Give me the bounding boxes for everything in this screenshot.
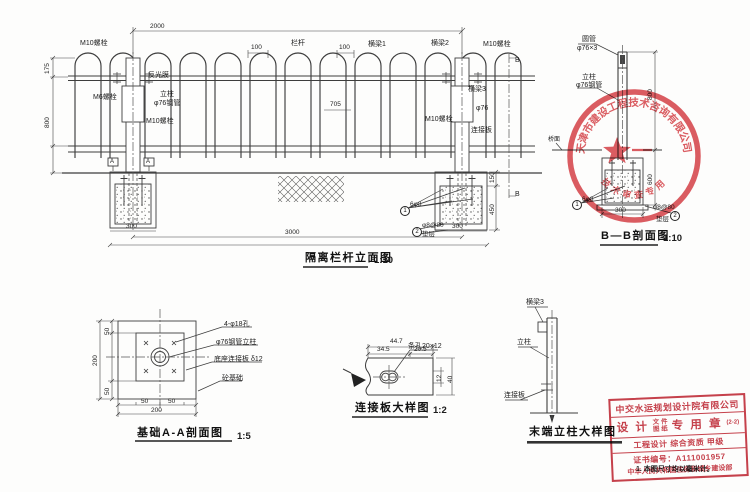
- dim-burial-1: 150: [490, 172, 497, 183]
- callout-stirrup: φ8@80: [422, 223, 444, 230]
- bb-title: B—B剖面图: [601, 231, 670, 243]
- aa-dim-left-total: 200: [93, 355, 100, 366]
- label-phi76: φ76: [476, 105, 488, 112]
- label-bb-cap: 圆管: [582, 36, 596, 43]
- aa-dim-left-2: 50: [105, 388, 112, 395]
- label-beam2: 横梁2: [431, 40, 449, 47]
- label-post-pipe: φ76钢管: [154, 100, 180, 107]
- aa-dim-left-1: 50: [105, 328, 112, 335]
- plate-dim-overall: 44.7: [390, 339, 403, 346]
- label-m10-bolt-mid: M10螺栓: [146, 118, 174, 125]
- aa-dim-bottom-1: 50: [141, 399, 148, 406]
- dim-top-overall: 2000: [150, 24, 164, 31]
- plate-dim-a: 34.5: [377, 347, 390, 354]
- label-conn-plate: 连接板: [471, 127, 492, 134]
- plate-dim-slot-h: 12: [437, 375, 444, 382]
- stamp-drawing: 图 纸: [653, 425, 668, 433]
- label-bb-deck: 桥面: [548, 137, 560, 143]
- dim-foundation-left: 300: [126, 224, 137, 231]
- label-bb-cap-size: φ76×3: [577, 45, 597, 52]
- ep-label-conn: 连接板: [504, 392, 525, 399]
- label-post: 立柱: [160, 91, 174, 98]
- dim-bottom-overall: 3000: [285, 230, 299, 237]
- dim-loop-pitch: 100: [339, 45, 350, 52]
- plate-dim-height: 40: [448, 376, 455, 383]
- dim-mid: 705: [330, 102, 341, 109]
- label-railing: 栏杆: [291, 40, 305, 47]
- drawing-canvas: M10螺栓 反光膜 M6螺栓 立柱 φ76钢管 M10螺栓 栏杆 横梁1 横梁2…: [0, 0, 750, 492]
- section-marker-b1: B: [515, 57, 520, 64]
- plate-title: 连接板大样图: [355, 403, 430, 415]
- label-m10-bolt-top: M10螺栓: [80, 40, 108, 47]
- aa-label-post: φ76钢管立柱: [216, 339, 256, 346]
- aa-label-holes: 4-φ18孔: [224, 321, 250, 328]
- plate-scale: 1:2: [433, 406, 447, 416]
- stamp-special-seal: 专 用 章: [671, 415, 723, 433]
- dim-height-top: 175: [45, 63, 52, 74]
- label-cushion: 垫层: [422, 232, 435, 239]
- callout-1-bubble: 1: [400, 206, 410, 216]
- label-bb-post: 立柱: [582, 74, 596, 81]
- callout-rebar: 6φ8: [410, 202, 421, 209]
- seal-star-icon: [603, 137, 631, 163]
- ep-title: 末端立柱大样图: [529, 427, 617, 439]
- stamp-design: 设 计: [616, 418, 649, 435]
- dim-loop-width: 100: [251, 45, 262, 52]
- ep-label-beam3: 横梁3: [526, 299, 544, 306]
- dim-foundation-right: 300: [452, 224, 463, 231]
- section-marker-a1: A: [110, 159, 114, 165]
- aa-dim-bottom-2: 50: [168, 399, 175, 406]
- round-review-seal: 天津市建设工程技术咨询有限公司 技术审查专用章: [562, 88, 706, 228]
- dim-height-bot: 800: [45, 117, 52, 128]
- bb-scale: 1:10: [663, 234, 682, 244]
- label-reflective-film: 反光膜: [148, 72, 169, 79]
- aa-scale: 1:5: [237, 432, 251, 442]
- label-m10-bolt-right: M10螺栓: [483, 41, 511, 48]
- aa-label-concrete: 砼基础: [222, 375, 243, 382]
- label-beam3: 横梁3: [468, 86, 486, 93]
- label-beam1: 横梁1: [368, 41, 386, 48]
- elevation-scale: 1:10: [374, 256, 393, 266]
- plate-dim-b: 20.5: [414, 347, 427, 354]
- section-marker-b2: B: [515, 191, 520, 198]
- ep-label-post: 立柱: [517, 339, 531, 346]
- dim-burial-2: 450: [490, 204, 497, 215]
- label-m6-bolt: M6螺栓: [93, 94, 117, 101]
- aa-dim-bottom-total: 200: [151, 408, 162, 415]
- label-m10-bolt-conn: M10螺栓: [425, 116, 453, 123]
- stamp-index: (2-2): [726, 419, 739, 426]
- callout-2-bubble: 2: [412, 227, 422, 237]
- seal-ring: [570, 92, 698, 220]
- aa-title: 基础A-A剖面图: [137, 428, 224, 440]
- aa-label-base-plate: 底座连接板 δ12: [214, 356, 263, 363]
- design-institute-stamp: 中交水运规划设计院有限公司 设 计 文 件 图 纸 专 用 章 (2-2) 工程…: [608, 393, 748, 482]
- section-marker-a2: A: [146, 159, 150, 165]
